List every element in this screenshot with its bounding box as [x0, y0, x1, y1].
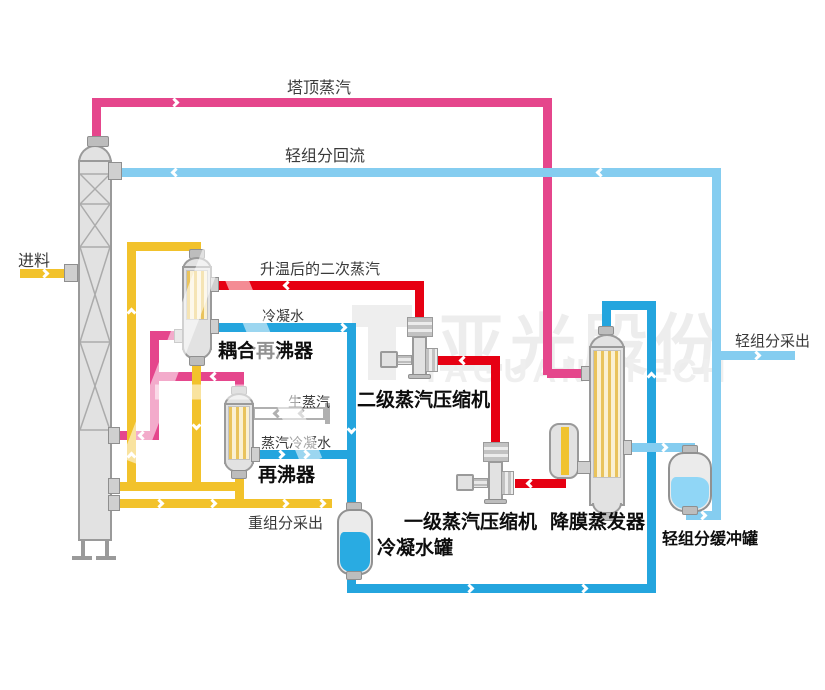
coupled-reboiler-tubes: [186, 270, 208, 320]
buffer-tank-liquid: [671, 477, 709, 509]
reboiler-tubes: [228, 406, 250, 460]
pipe-heavy-draw: [114, 499, 332, 508]
separator-connector: [577, 461, 591, 474]
column-reflux-nozzle: [108, 162, 122, 180]
pipe-bottoms-header: [114, 482, 243, 491]
buffer-tank-bottom-cap: [682, 506, 698, 515]
column-feed-nozzle: [64, 264, 78, 282]
column-top-cap: [87, 136, 109, 147]
evaporator-outlet-nozzle: [623, 440, 632, 455]
label-coupled-reboiler: 耦合再沸器: [218, 336, 313, 363]
coupled-reboiler-bottom-cap: [189, 356, 205, 366]
pipe-stage1-discharge: [491, 356, 500, 443]
evaporator-vapor-inlet-nozzle: [581, 366, 590, 381]
pipe-condensate-return: [347, 584, 656, 593]
process-flow-diagram: 亚光股份 YAGUANGTECH: [0, 0, 825, 690]
column-bottoms-nozzle: [108, 478, 120, 494]
label-condensate-tank: 冷凝水罐: [377, 533, 453, 560]
pipe-light-riser: [712, 168, 721, 520]
condensate-tank-liquid: [340, 532, 370, 572]
stage2-compressor-inlet-flanges: [425, 348, 438, 372]
stage1-compressor-motor: [456, 474, 474, 491]
column-leg: [105, 540, 109, 557]
column-packing-pattern: [80, 162, 110, 539]
label-feed: 进料: [18, 247, 50, 271]
pipe-heated-secondary-steam: [216, 281, 424, 290]
pipe-condensate-drop: [347, 323, 356, 509]
pipe-top-steam: [92, 98, 552, 107]
evaporator-tubes: [593, 350, 621, 478]
label-stage1-compressor: 一级蒸汽压缩机: [404, 507, 537, 534]
label-light-draw: 轻组分采出: [735, 330, 810, 351]
label-buffer-tank: 轻组分缓冲罐: [662, 525, 758, 549]
label-heated-secondary-steam: 升温后的二次蒸汽: [260, 258, 380, 279]
label-heavy-draw: 重组分采出: [248, 512, 323, 533]
distillation-column: [78, 160, 112, 541]
label-top-steam: 塔顶蒸汽: [287, 74, 351, 98]
stage1-compressor-base: [484, 499, 507, 504]
stage2-compressor-flanges: [407, 317, 433, 337]
reboiler-bottom-cap: [231, 470, 247, 479]
column-heavy-draw-nozzle: [108, 495, 120, 511]
watermark-logo-shape: [368, 305, 396, 380]
stage2-compressor-base: [408, 374, 431, 379]
pipe-vapor-return-to-column: [114, 431, 159, 440]
stage1-compressor-shaft: [473, 478, 488, 488]
label-reboiler: 再沸器: [258, 460, 315, 487]
stage2-compressor-motor: [380, 351, 398, 368]
separator-sight-glass: [561, 427, 569, 475]
column-foot: [72, 556, 92, 560]
label-condensate: 冷凝水: [262, 306, 304, 326]
coupled-reboiler-vapor-nozzle: [174, 329, 183, 343]
column-leg: [81, 540, 85, 557]
pipe-light-reflux: [122, 168, 721, 177]
coupled-reboiler-condensate-nozzle: [210, 319, 219, 334]
label-light-reflux: 轻组分回流: [285, 142, 365, 166]
stage1-compressor-flanges: [483, 442, 509, 462]
label-steam-condensate: 蒸汽冷凝水: [261, 433, 331, 453]
label-raw-steam: 生蒸汽: [288, 392, 330, 412]
coupled-reboiler-steam-nozzle: [210, 277, 219, 292]
pipe-vapor-return-drop: [150, 331, 159, 440]
column-foot: [96, 556, 116, 560]
stage1-compressor-inlet-flanges: [501, 471, 514, 495]
condensate-tank-bottom-cap: [346, 571, 362, 580]
label-stage2-compressor: 二级蒸汽压缩机: [357, 385, 490, 412]
column-vapor-return-nozzle: [108, 427, 120, 444]
pipe-top-steam-downcomer: [543, 98, 552, 375]
stage2-compressor-shaft: [397, 355, 412, 365]
label-evaporator: 降膜蒸发器: [550, 507, 645, 534]
pipe-stage2-discharge: [415, 285, 424, 318]
